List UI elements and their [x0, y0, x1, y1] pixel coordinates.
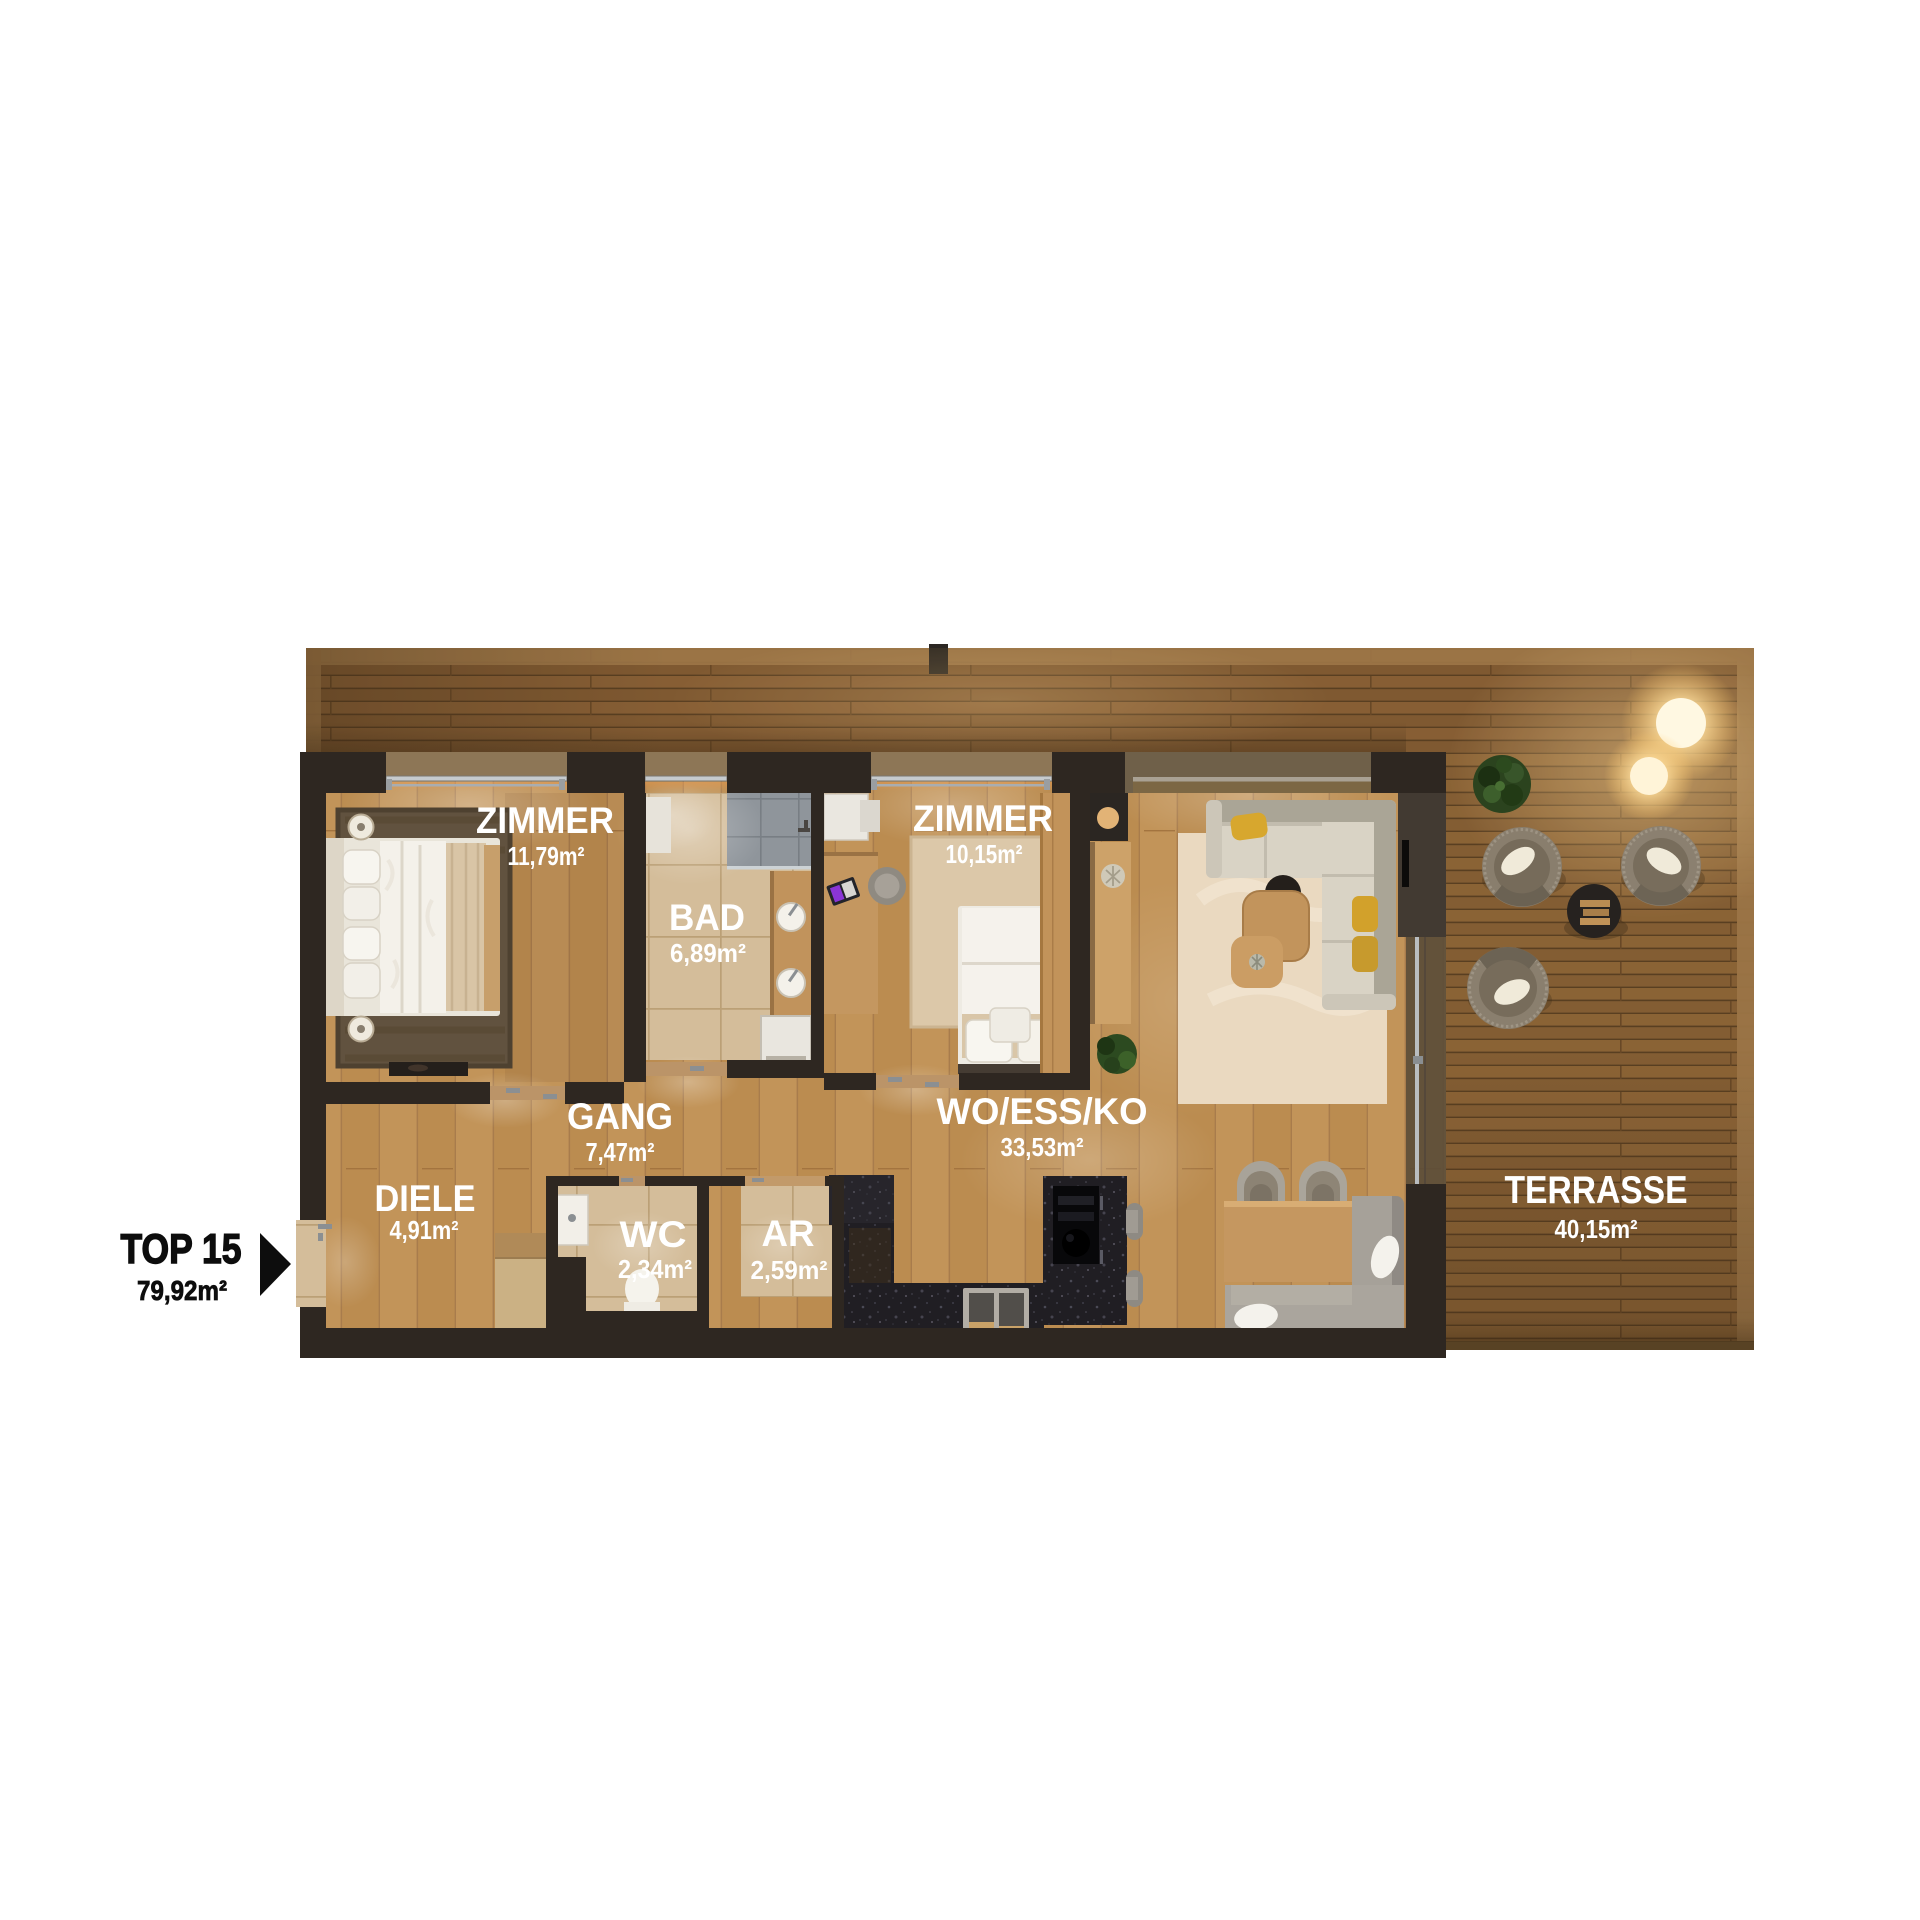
svg-text:2,59m²: 2,59m² [751, 1255, 828, 1285]
svg-text:TERRASSE: TERRASSE [1505, 1169, 1688, 1212]
svg-text:ZIMMER: ZIMMER [476, 800, 614, 841]
svg-text:4,91m²: 4,91m² [390, 1215, 459, 1245]
svg-text:7,47m²: 7,47m² [586, 1137, 655, 1167]
svg-text:33,53m²: 33,53m² [1001, 1132, 1084, 1162]
svg-text:2,34m²: 2,34m² [618, 1254, 692, 1284]
svg-text:WC: WC [620, 1214, 687, 1255]
svg-text:WO/ESS/KO: WO/ESS/KO [937, 1091, 1148, 1132]
svg-text:40,15m²: 40,15m² [1555, 1214, 1638, 1244]
svg-text:AR: AR [762, 1213, 815, 1254]
svg-text:11,79m²: 11,79m² [508, 841, 585, 871]
svg-text:DIELE: DIELE [375, 1178, 476, 1219]
svg-text:BAD: BAD [669, 897, 745, 938]
svg-text:10,15m²: 10,15m² [946, 839, 1023, 869]
svg-text:ZIMMER: ZIMMER [913, 798, 1053, 839]
svg-text:6,89m²: 6,89m² [670, 938, 746, 968]
svg-text:79,92m²: 79,92m² [137, 1275, 227, 1306]
svg-text:TOP 15: TOP 15 [121, 1225, 242, 1272]
svg-text:GANG: GANG [567, 1096, 673, 1137]
